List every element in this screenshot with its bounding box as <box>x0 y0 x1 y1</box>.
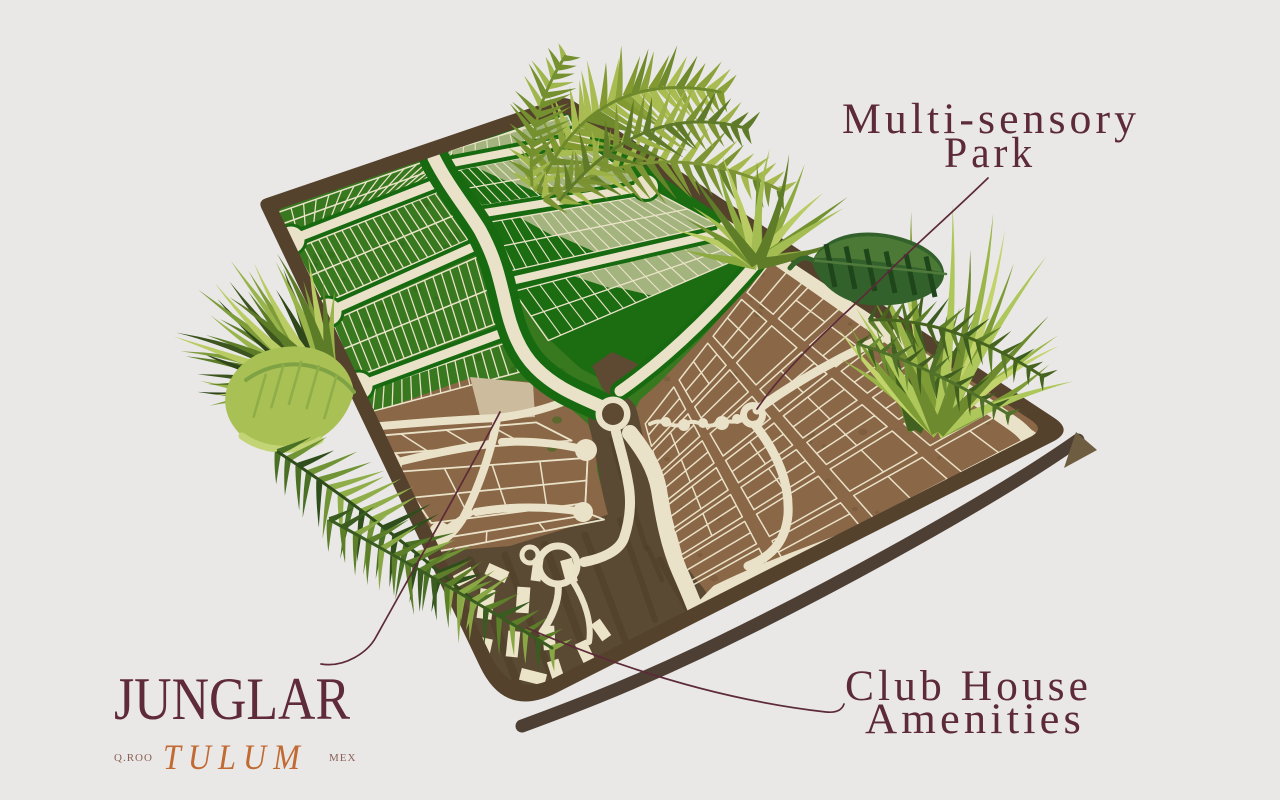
svg-text:TULUM: TULUM <box>163 737 307 777</box>
svg-text:Amenities: Amenities <box>865 696 1085 743</box>
svg-text:Park: Park <box>944 130 1036 177</box>
svg-text:Q.ROO: Q.ROO <box>114 752 153 764</box>
svg-text:MEX: MEX <box>329 752 356 764</box>
svg-text:JUNGLAR: JUNGLAR <box>114 666 350 732</box>
